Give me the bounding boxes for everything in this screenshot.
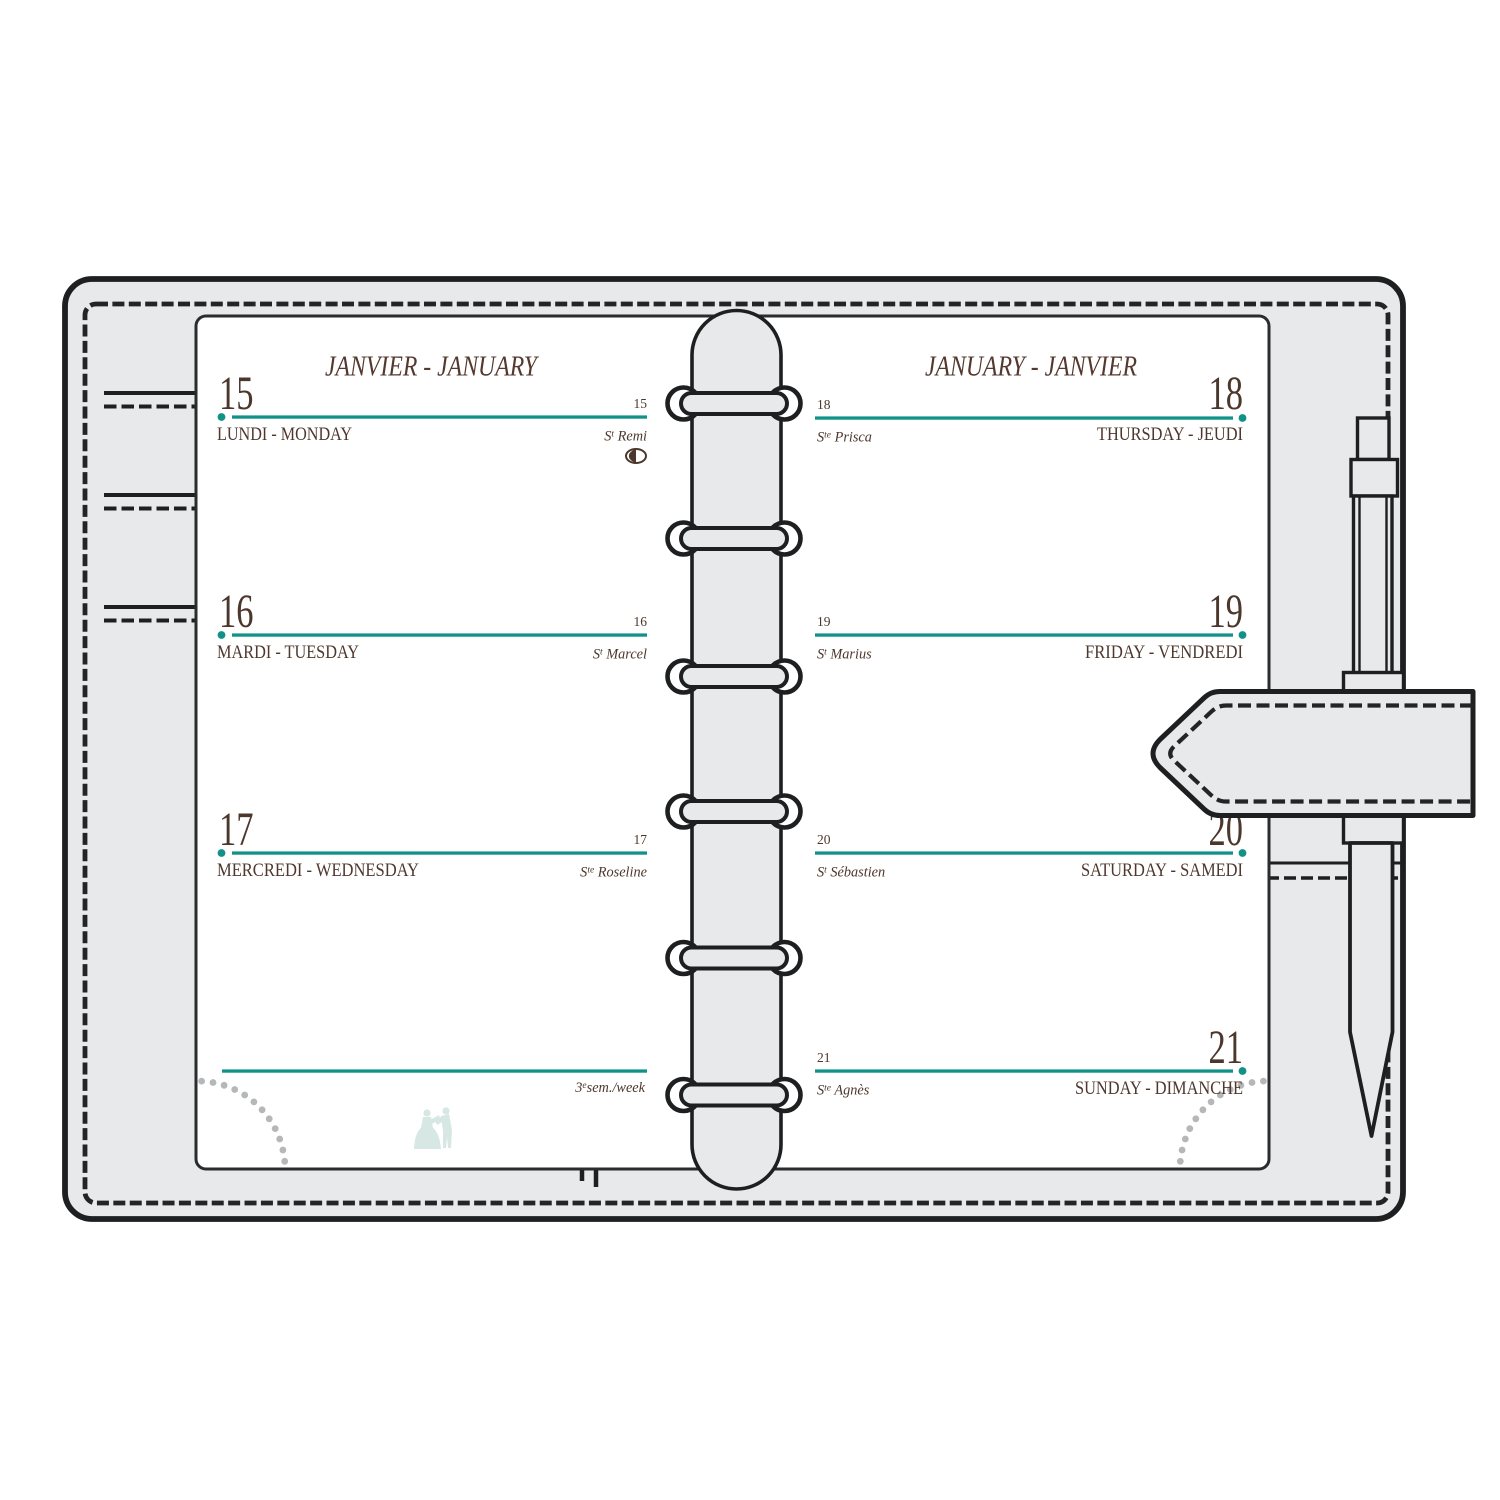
svg-text:17: 17 [219, 803, 254, 856]
svg-text:SUNDAY - DIMANCHE: SUNDAY - DIMANCHE [1075, 1079, 1243, 1099]
svg-text:20: 20 [817, 832, 831, 847]
svg-text:MERCREDI - WEDNESDAY: MERCREDI - WEDNESDAY [217, 861, 419, 881]
svg-text:16: 16 [634, 614, 648, 629]
svg-text:SATURDAY - SAMEDI: SATURDAY - SAMEDI [1081, 861, 1243, 881]
svg-text:THURSDAY - JEUDI: THURSDAY - JEUDI [1097, 425, 1243, 445]
svg-text:St Remi: St Remi [604, 429, 647, 445]
svg-text:MARDI - TUESDAY: MARDI - TUESDAY [217, 643, 359, 663]
svg-text:16: 16 [219, 585, 254, 638]
svg-text:19: 19 [817, 614, 831, 629]
svg-text:18: 18 [1209, 367, 1244, 420]
svg-text:21: 21 [817, 1050, 831, 1065]
svg-text:17: 17 [634, 832, 648, 847]
svg-text:15: 15 [634, 396, 648, 411]
svg-text:15: 15 [219, 367, 254, 420]
svg-text:JANUARY - JANVIER: JANUARY - JANVIER [925, 352, 1137, 383]
svg-text:19: 19 [1209, 585, 1244, 638]
svg-text:St Sébastien: St Sébastien [817, 865, 885, 881]
svg-text:FRIDAY - VENDREDI: FRIDAY - VENDREDI [1085, 643, 1243, 663]
svg-text:21: 21 [1209, 1021, 1244, 1074]
svg-text:18: 18 [817, 397, 831, 412]
svg-text:LUNDI - MONDAY: LUNDI - MONDAY [217, 425, 352, 445]
svg-text:JANVIER - JANUARY: JANVIER - JANUARY [325, 352, 540, 383]
